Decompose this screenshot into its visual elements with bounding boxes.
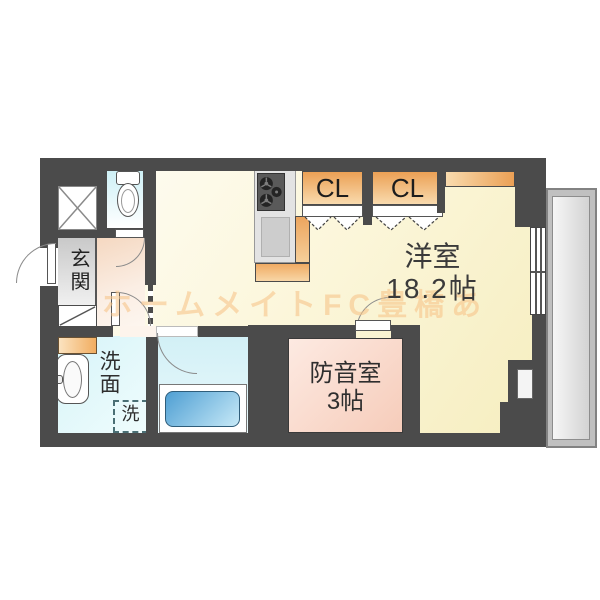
- washing-machine-label: 洗: [113, 404, 148, 425]
- toilet-door-leaf: [115, 229, 144, 238]
- wall-right-lower: [532, 315, 546, 447]
- bathtub-icon: [165, 391, 240, 427]
- wall-hall-right: [145, 238, 156, 285]
- washroom-shelf: [58, 337, 97, 354]
- kitchen-sink-icon: [261, 217, 290, 257]
- wall-hall-bottom: [58, 326, 113, 337]
- western-room-name: 洋室: [360, 241, 505, 273]
- wall-toilet-left: [97, 158, 107, 238]
- pipe-space-icon: [517, 369, 533, 399]
- balcony-deck: [552, 196, 590, 440]
- shaft-x-icon: [58, 186, 97, 230]
- toilet-icon: [114, 171, 142, 219]
- window-right-icon: [530, 227, 546, 315]
- wall-soundproof-left: [248, 325, 288, 447]
- entrance-label: 玄関: [66, 248, 89, 294]
- soundproof-room-size: 3帖: [288, 388, 403, 416]
- wall-soundproof-right: [403, 325, 420, 447]
- soundproof-room-label: 防音室 3帖: [288, 360, 403, 415]
- wall-bottom: [40, 433, 546, 447]
- closet-1-folding-door-icon: [302, 217, 363, 231]
- stove-icon: [257, 173, 285, 211]
- soundproof-room-name: 防音室: [288, 360, 403, 388]
- wall-closet-divider: [363, 158, 372, 225]
- western-room-size: 18.2帖: [360, 273, 505, 305]
- wall-left-lower: [40, 285, 58, 447]
- wall-soundproof-top-a: [266, 325, 356, 338]
- closet-2-door-bar: [372, 205, 443, 217]
- washbasin-icon: [56, 354, 89, 404]
- closet-2-folding-door-icon: [372, 217, 443, 231]
- washroom-doorway: [120, 326, 156, 337]
- wall-pillar-step: [500, 402, 533, 433]
- wall-top-right-block: [515, 158, 546, 227]
- closet-1-door-bar: [302, 205, 363, 217]
- western-room-label: 洋室 18.2帖: [360, 241, 505, 305]
- shoe-cabinet-icon: [58, 305, 97, 327]
- wall-toilet-right: [143, 158, 156, 238]
- closet-2-label: CL: [372, 174, 443, 204]
- top-right-shelf: [445, 171, 515, 187]
- entrance-door-arc: [16, 243, 56, 283]
- floorplan-canvas: CL CL 玄関 洋室 18.2帖 防音室 3帖 洗: [0, 0, 600, 600]
- wall-top: [40, 158, 546, 171]
- washroom-label: 洗面: [96, 350, 120, 396]
- closet-1-label: CL: [302, 174, 363, 204]
